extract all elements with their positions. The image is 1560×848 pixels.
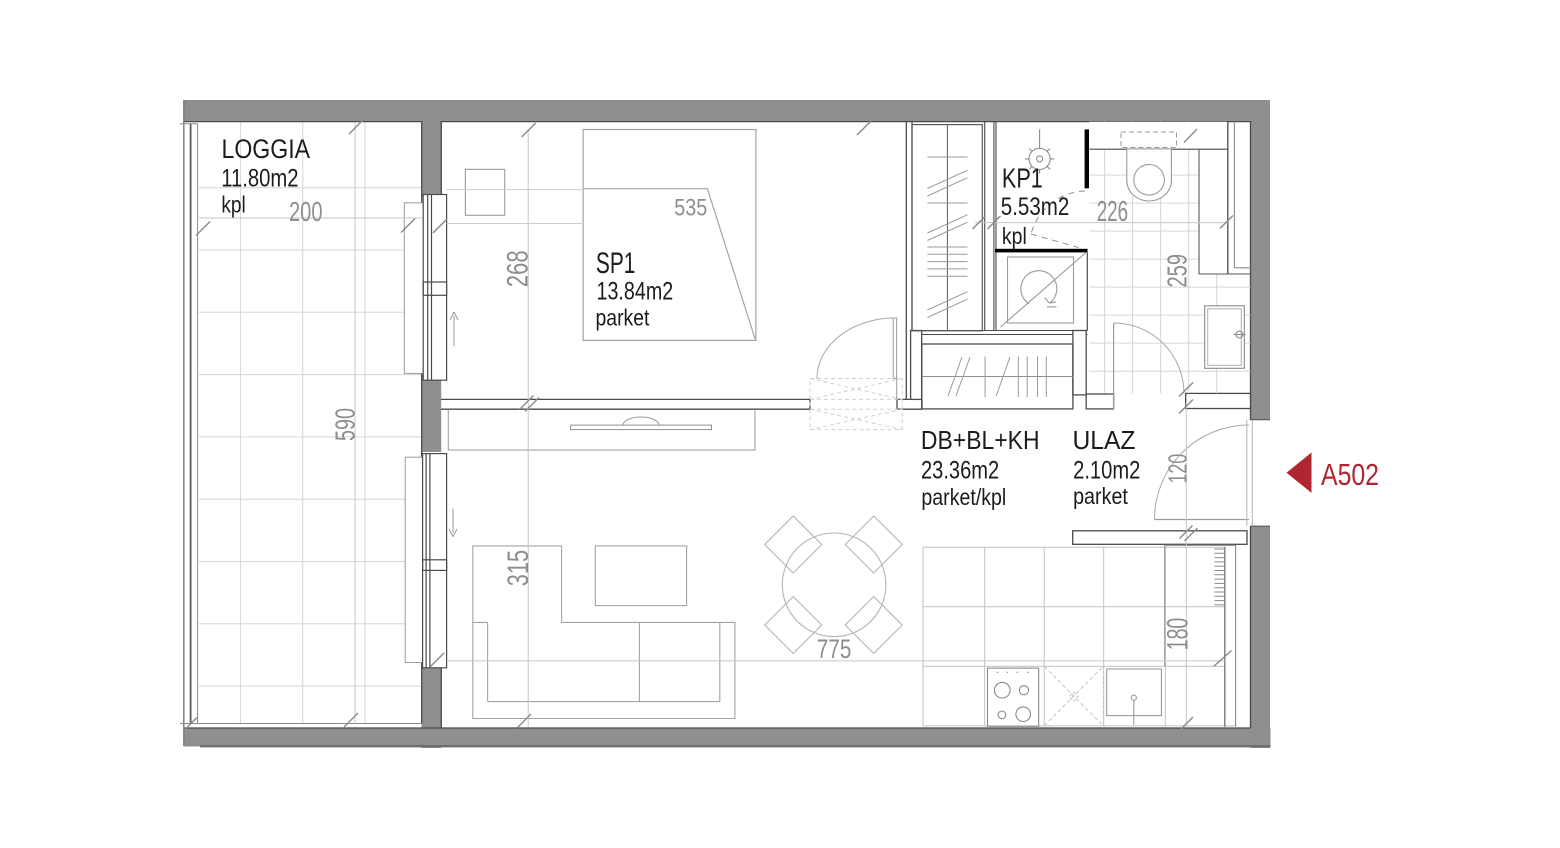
svg-text:259: 259: [1162, 254, 1193, 288]
svg-text:parket/kpl: parket/kpl: [921, 484, 1006, 510]
svg-text:180: 180: [1161, 618, 1194, 651]
svg-text:parket: parket: [1073, 483, 1128, 509]
svg-text:315: 315: [502, 550, 535, 586]
svg-text:226: 226: [1097, 196, 1128, 228]
svg-text:kpl: kpl: [1002, 223, 1027, 249]
svg-text:590: 590: [330, 408, 361, 441]
svg-text:120: 120: [1165, 454, 1193, 484]
svg-text:11.80m2: 11.80m2: [221, 164, 298, 192]
svg-text:268: 268: [502, 250, 535, 287]
svg-text:13.84m2: 13.84m2: [597, 278, 674, 306]
svg-text:5.53m2: 5.53m2: [1001, 193, 1070, 221]
svg-text:23.36m2: 23.36m2: [921, 456, 999, 484]
svg-text:DB+BL+KH: DB+BL+KH: [921, 425, 1040, 455]
svg-text:A502: A502: [1321, 457, 1379, 492]
svg-text:SP1: SP1: [596, 247, 636, 280]
svg-text:kpl: kpl: [221, 191, 245, 217]
svg-text:ULAZ: ULAZ: [1073, 425, 1136, 455]
svg-text:KP1: KP1: [1002, 163, 1043, 194]
svg-text:LOGGIA: LOGGIA: [222, 134, 311, 164]
svg-text:200: 200: [289, 196, 323, 227]
svg-text:775: 775: [817, 634, 852, 664]
svg-text:535: 535: [674, 195, 707, 222]
svg-text:2.10m2: 2.10m2: [1073, 457, 1140, 485]
svg-text:parket: parket: [596, 305, 650, 331]
